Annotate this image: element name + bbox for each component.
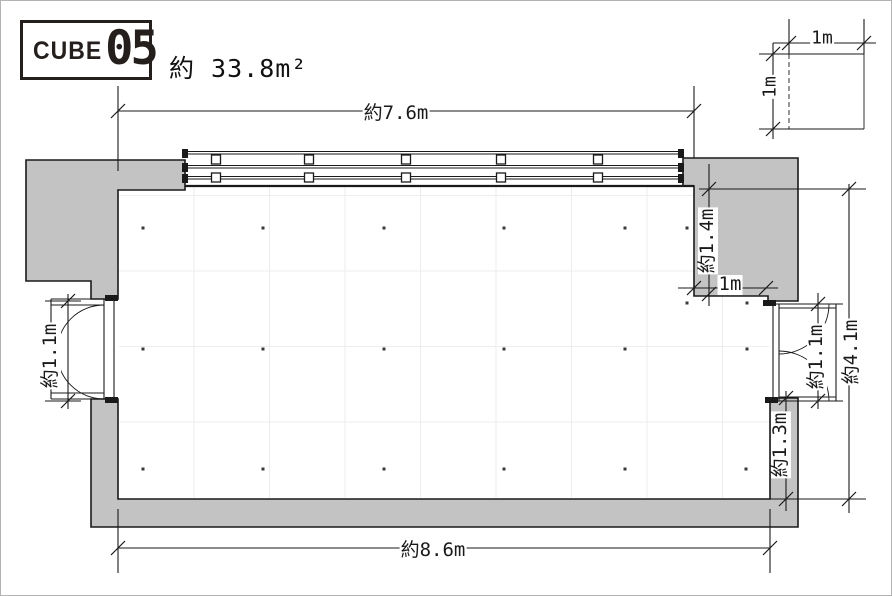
dim-label-top-width: 約7.6m: [363, 104, 430, 124]
left-door: [51, 295, 118, 403]
dim-label-left-door: 約1.1m: [41, 323, 61, 390]
floor-plan-drawing: [1, 1, 892, 596]
dim-label-right-step: 1m: [718, 275, 743, 295]
dim-label-right-lower-wall: 約1.3m: [771, 412, 791, 479]
walls: [26, 158, 798, 527]
wall-top-left: [26, 160, 185, 299]
dim-label-right-door: 約1.1m: [807, 324, 827, 391]
dim-label-bottom-width: 約8.6m: [400, 541, 467, 561]
floor-plan: CUBE 05 約 33.8m² 約7.6m 約8.6m 約4.1m 約1.4m…: [0, 0, 892, 596]
dim-label-scale-left: 1m: [762, 75, 781, 99]
dim-label-right-overall: 約4.1m: [842, 319, 862, 386]
unit-logo: CUBE 05: [20, 20, 152, 80]
floor-dots: [142, 227, 749, 471]
dim-label-right-upper-wall: 約1.4m: [698, 208, 718, 275]
floor-area-label: 約 33.8m²: [169, 49, 307, 85]
dim-label-scale-top: 1m: [810, 30, 834, 49]
window-band: [182, 149, 694, 186]
logo-unit-number: 05: [105, 21, 156, 76]
wall-bottom: [91, 398, 798, 527]
logo-brand-text: CUBE: [33, 35, 102, 65]
floor-grid: [119, 187, 769, 498]
